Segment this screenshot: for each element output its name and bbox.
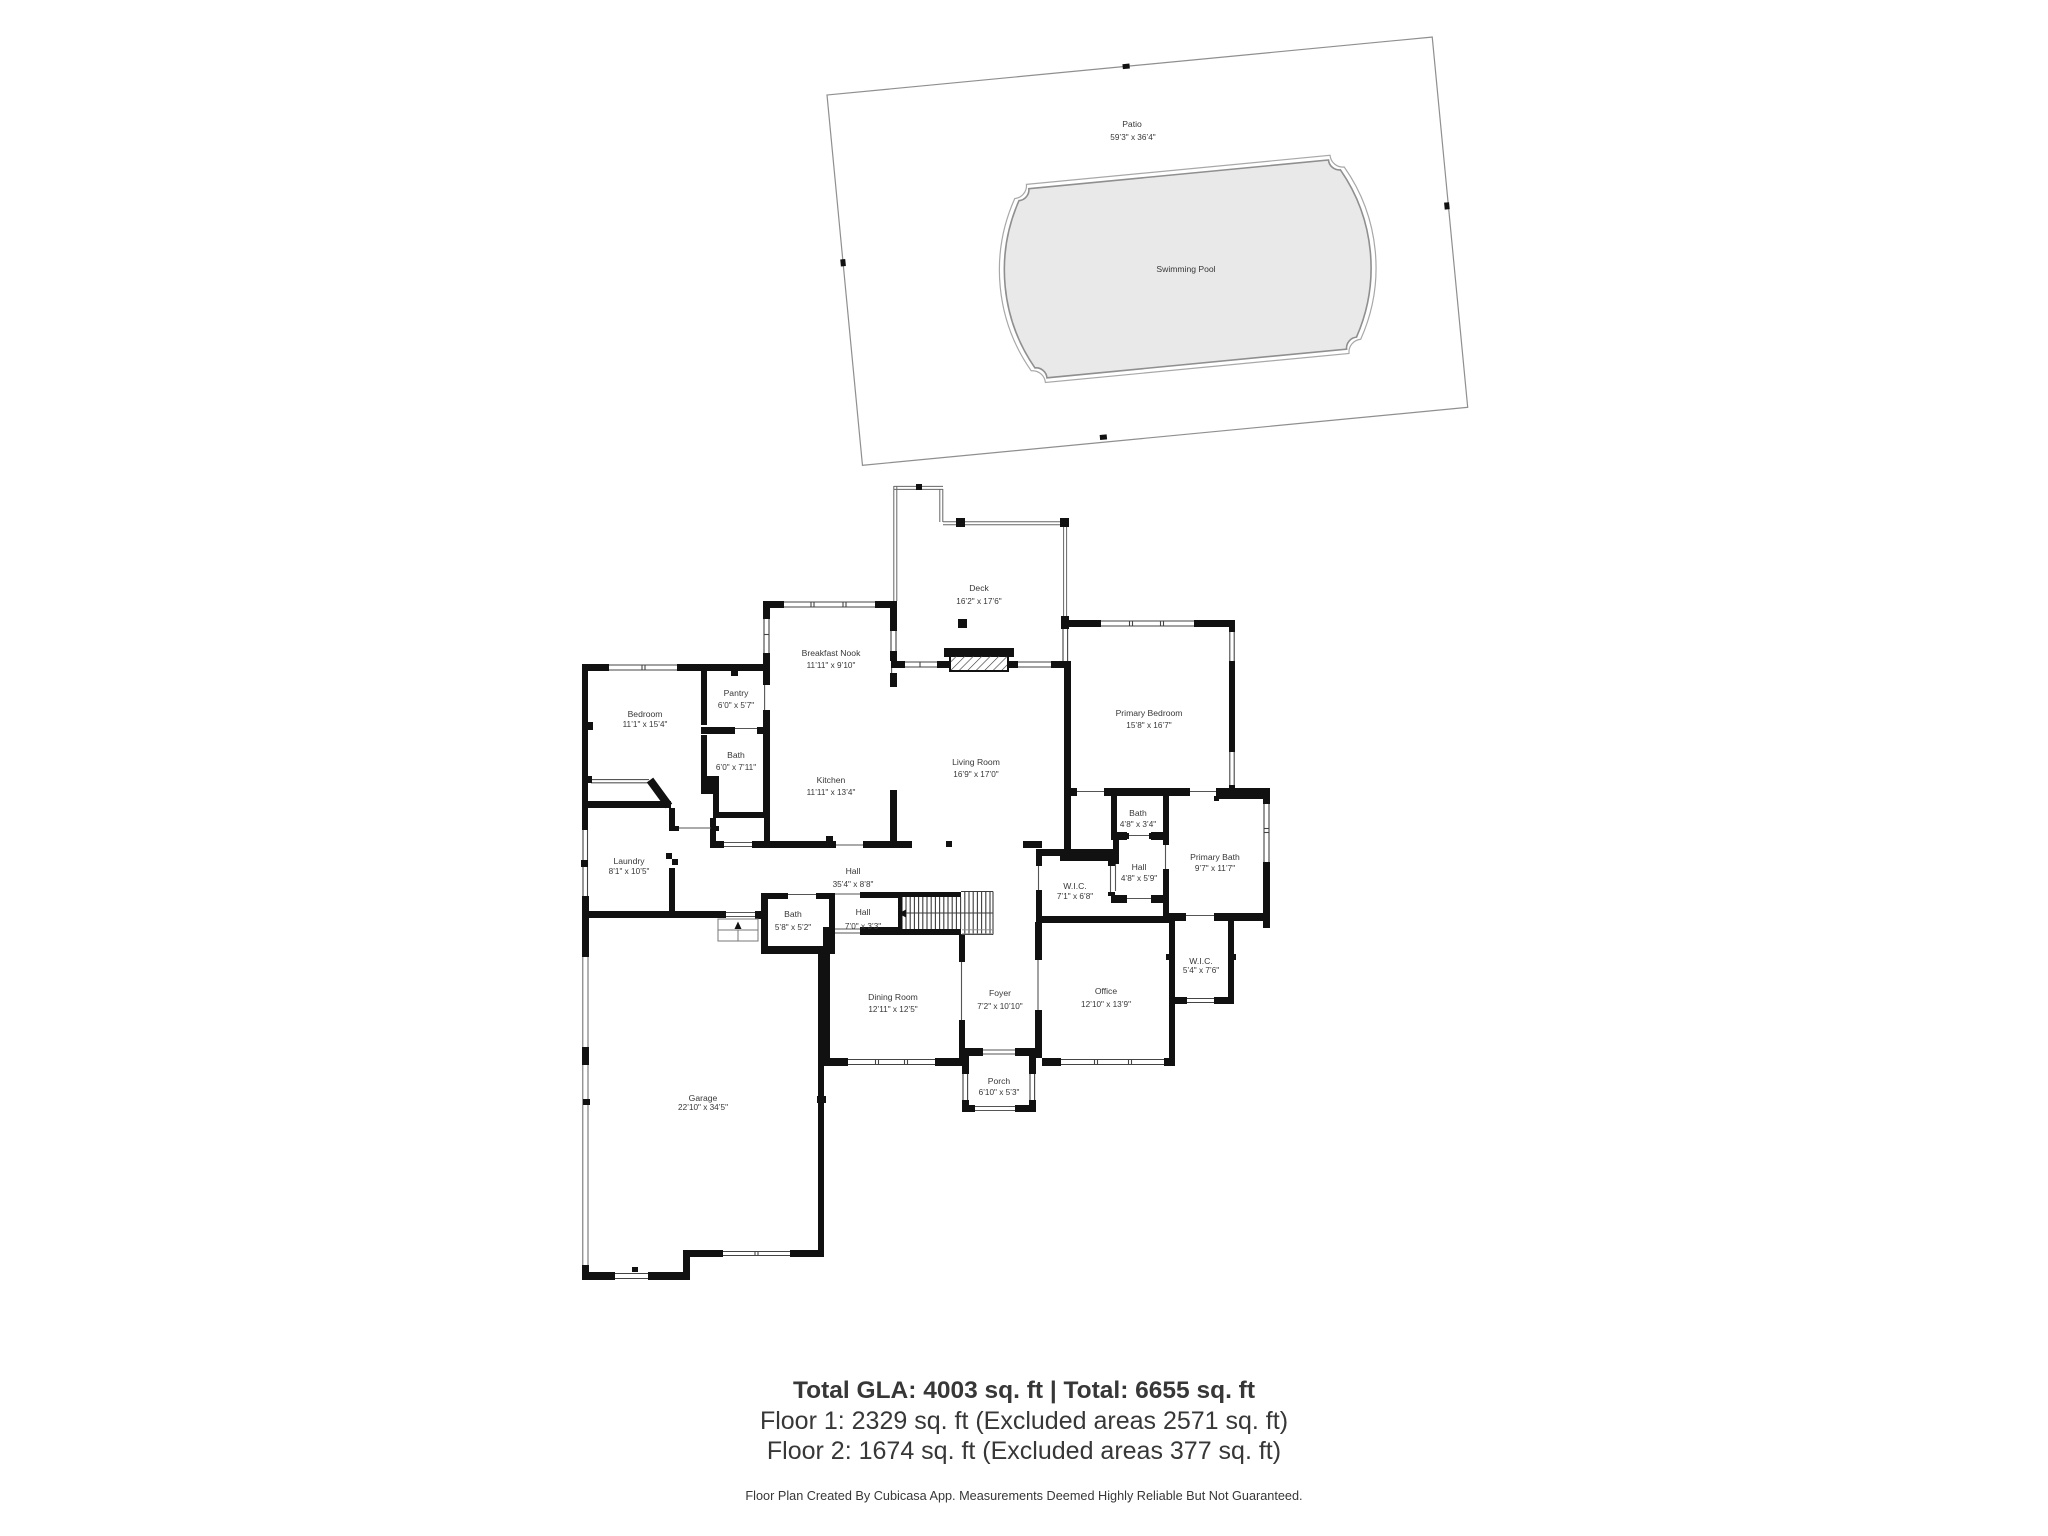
svg-text:Floor 1: 2329 sq. ft (Excluded: Floor 1: 2329 sq. ft (Excluded areas 257… (760, 1407, 1288, 1435)
svg-text:Bath: Bath (1129, 808, 1147, 818)
svg-text:11’1" x 15’4": 11’1" x 15’4" (623, 720, 668, 729)
svg-text:Pantry: Pantry (724, 688, 750, 698)
svg-text:Deck: Deck (969, 583, 989, 593)
svg-text:Swimming Pool: Swimming Pool (1156, 264, 1215, 274)
svg-text:Hall: Hall (846, 866, 861, 876)
svg-text:8’1" x 10’5": 8’1" x 10’5" (609, 867, 650, 876)
svg-text:Office: Office (1095, 986, 1118, 996)
svg-text:Kitchen: Kitchen (817, 775, 846, 785)
svg-text:22’10" x 34’5": 22’10" x 34’5" (678, 1103, 728, 1112)
svg-text:12’11" x 12’5": 12’11" x 12’5" (868, 1005, 917, 1014)
svg-text:16’2" x 17’6": 16’2" x 17’6" (956, 597, 1002, 606)
svg-text:Primary Bedroom: Primary Bedroom (1116, 708, 1183, 718)
svg-text:W.I.C.: W.I.C. (1063, 881, 1086, 891)
svg-text:Hall: Hall (856, 907, 871, 917)
svg-text:Laundry: Laundry (613, 856, 645, 866)
svg-text:Foyer: Foyer (989, 988, 1011, 998)
svg-text:Living Room: Living Room (952, 757, 1000, 767)
svg-text:Bath: Bath (727, 750, 745, 760)
svg-text:7’2" x 10’10": 7’2" x 10’10" (977, 1002, 1023, 1011)
svg-text:6’0" x 7’11": 6’0" x 7’11" (716, 763, 756, 772)
svg-text:Bath: Bath (784, 909, 802, 919)
svg-text:Porch: Porch (988, 1076, 1011, 1086)
svg-text:6’10" x 5’3": 6’10" x 5’3" (979, 1088, 1020, 1097)
svg-text:11’11" x 9’10": 11’11" x 9’10" (807, 661, 856, 670)
svg-text:5’4" x 7’6": 5’4" x 7’6" (1183, 966, 1219, 975)
svg-text:4’8" x 5’9": 4’8" x 5’9" (1121, 874, 1157, 883)
svg-text:Primary Bath: Primary Bath (1190, 852, 1240, 862)
svg-text:11’11" x 13’4": 11’11" x 13’4" (807, 788, 856, 797)
svg-text:35’4" x 8’8": 35’4" x 8’8" (833, 880, 874, 889)
svg-text:Dining Room: Dining Room (868, 992, 918, 1002)
svg-text:15’8" x 16’7": 15’8" x 16’7" (1126, 721, 1172, 730)
svg-text:Bedroom: Bedroom (628, 709, 663, 719)
svg-text:Patio: Patio (1122, 119, 1142, 129)
svg-text:Hall: Hall (1132, 862, 1147, 872)
svg-text:Floor Plan Created By Cubicasa: Floor Plan Created By Cubicasa App. Meas… (745, 1489, 1302, 1503)
svg-text:9’7" x 11’7": 9’7" x 11’7" (1195, 864, 1235, 873)
svg-text:7’1" x 6’8": 7’1" x 6’8" (1057, 892, 1093, 901)
svg-text:W.I.C.: W.I.C. (1189, 956, 1212, 966)
svg-text:4’8" x 3’4": 4’8" x 3’4" (1120, 820, 1156, 829)
svg-text:Garage: Garage (689, 1093, 718, 1103)
svg-text:5’8" x 5’2": 5’8" x 5’2" (775, 923, 811, 932)
svg-text:59’3" x 36’4": 59’3" x 36’4" (1110, 133, 1156, 142)
svg-text:Floor 2: 1674 sq. ft (Excluded: Floor 2: 1674 sq. ft (Excluded areas 377… (767, 1437, 1281, 1465)
svg-text:Total GLA: 4003 sq. ft | Total: Total GLA: 4003 sq. ft | Total: 6655 sq.… (793, 1377, 1255, 1404)
svg-text:7’0" x 3’3": 7’0" x 3’3" (845, 922, 881, 931)
svg-text:Breakfast Nook: Breakfast Nook (802, 648, 861, 658)
svg-text:12’10" x 13’9": 12’10" x 13’9" (1081, 1000, 1131, 1009)
svg-text:16’9" x 17’0": 16’9" x 17’0" (953, 770, 999, 779)
svg-text:6’0" x 5’7": 6’0" x 5’7" (718, 701, 754, 710)
